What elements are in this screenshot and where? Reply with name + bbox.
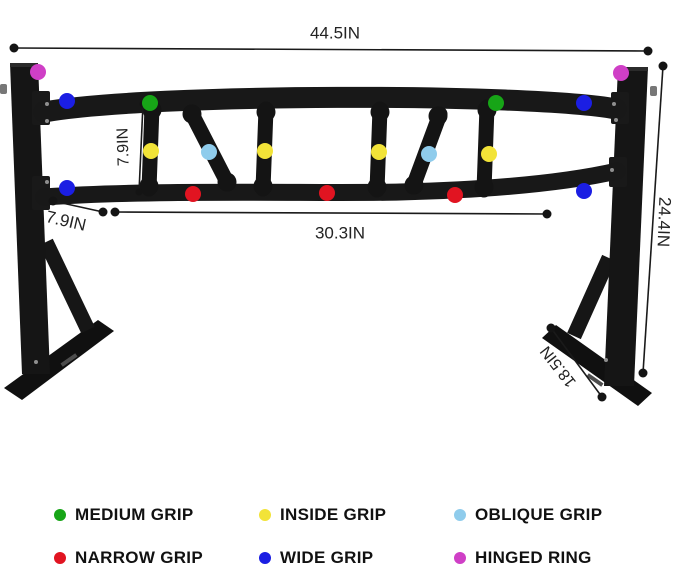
inside-grip-marker	[481, 146, 497, 162]
legend-item-hinged-ring: HINGED RING	[454, 548, 592, 566]
dimension-label-overall-height: 24.4IN	[655, 197, 674, 248]
legend-item-wide-grip: WIDE GRIP	[259, 548, 373, 566]
legend-item-oblique-grip: OBLIQUE GRIP	[454, 505, 602, 525]
medium-grip-marker	[142, 95, 158, 111]
legend-label: NARROW GRIP	[75, 548, 203, 566]
narrow-grip-dot-icon	[54, 552, 66, 564]
medium-grip-dot-icon	[54, 509, 66, 521]
dimension-label-overall-width: 44.5IN	[310, 25, 360, 42]
oblique-grip-dot-icon	[454, 509, 466, 521]
legend-row-2: NARROW GRIP WIDE GRIP HINGED RING	[0, 548, 679, 566]
inside-grip-marker	[257, 143, 273, 159]
right-hook-detail	[650, 86, 657, 96]
wide-grip-marker	[59, 93, 75, 109]
left-brace	[46, 242, 88, 330]
narrow-grip-marker	[447, 187, 463, 203]
top-bar	[44, 97, 616, 112]
left-hook-detail	[0, 84, 7, 94]
legend-item-narrow-grip: NARROW GRIP	[54, 548, 203, 566]
legend-label: MEDIUM GRIP	[75, 505, 194, 525]
hinged-ring-marker	[30, 64, 46, 80]
legend-row-1: MEDIUM GRIP INSIDE GRIP OBLIQUE GRIP	[0, 505, 679, 525]
legend-label: WIDE GRIP	[280, 548, 373, 566]
wide-grip-dot-icon	[259, 552, 271, 564]
inside-grip-marker	[371, 144, 387, 160]
inside-grip-marker	[143, 143, 159, 159]
hinged-ring-marker	[613, 65, 629, 81]
wide-grip-marker	[59, 180, 75, 196]
hinged-ring-dot-icon	[454, 552, 466, 564]
legend-label: OBLIQUE GRIP	[475, 505, 602, 525]
wide-grip-marker	[576, 183, 592, 199]
narrow-grip-marker	[319, 185, 335, 201]
dimension-label-grip-height: 7.9IN	[115, 128, 132, 167]
dimension-line-overall-width	[14, 48, 648, 51]
dimension-line-inner-span	[115, 212, 547, 214]
wide-grip-marker	[576, 95, 592, 111]
right-brace	[574, 258, 609, 336]
medium-grip-marker	[488, 95, 504, 111]
product-diagram: 44.5IN 24.4IN 7.9IN 7.9IN 30.3IN 18.5IN …	[0, 0, 679, 566]
legend-label: HINGED RING	[475, 548, 592, 566]
oblique-grip-marker	[201, 144, 217, 160]
inside-grip-dot-icon	[259, 509, 271, 521]
legend-item-inside-grip: INSIDE GRIP	[259, 505, 386, 525]
dimension-label-inner-span: 30.3IN	[315, 225, 365, 242]
legend-label: INSIDE GRIP	[280, 505, 386, 525]
legend-item-medium-grip: MEDIUM GRIP	[54, 505, 194, 525]
oblique-grip-marker	[421, 146, 437, 162]
narrow-grip-marker	[185, 186, 201, 202]
